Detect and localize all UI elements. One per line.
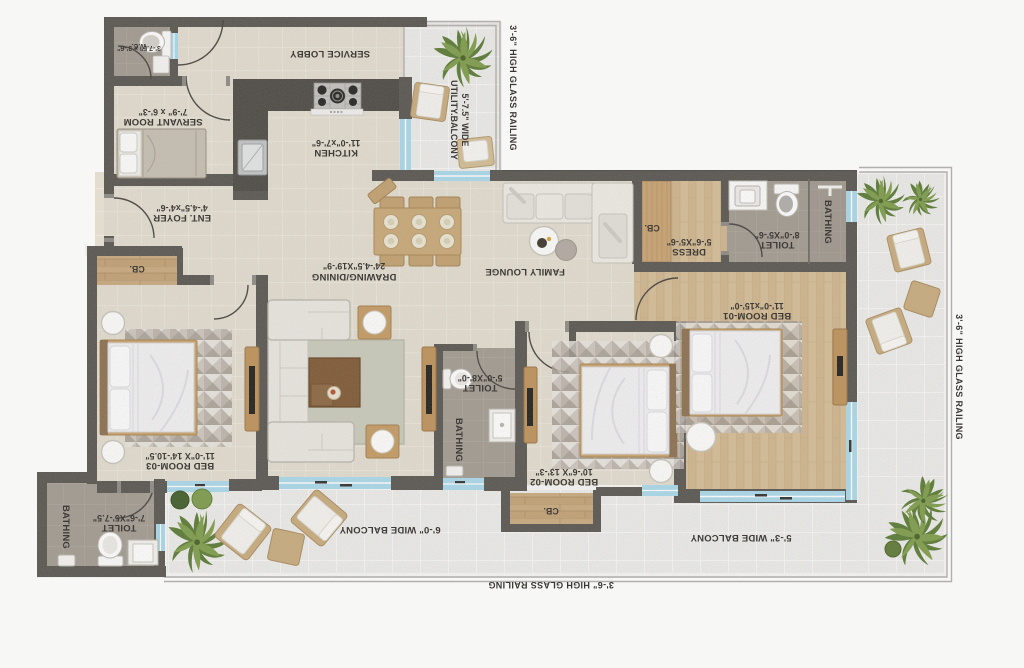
svg-text:5'-3" WIDE BALCONY: 5'-3" WIDE BALCONY: [690, 532, 792, 543]
svg-text:3'-6" HIGH GLASS RAILING: 3'-6" HIGH GLASS RAILING: [488, 580, 614, 590]
svg-text:SERVICE LOBBY: SERVICE LOBBY: [290, 48, 370, 59]
svg-text:DRAWING/DINING: DRAWING/DINING: [312, 271, 397, 282]
svg-text:CB.: CB.: [644, 223, 659, 233]
svg-text:6'-0" WIDE BALCONY: 6'-0" WIDE BALCONY: [339, 524, 441, 535]
svg-text:7'-9" x 6'-3": 7'-9" x 6'-3": [138, 107, 187, 117]
svg-text:4'-4.5"x4'-6": 4'-4.5"x4'-6": [156, 203, 207, 213]
svg-text:3'-6" HIGH GLASS RAILING: 3'-6" HIGH GLASS RAILING: [954, 314, 964, 440]
svg-text:BATHING: BATHING: [60, 505, 71, 549]
svg-text:11'-0"x15'-0": 11'-0"x15'-0": [730, 301, 783, 311]
svg-text:CB.: CB.: [543, 506, 558, 516]
svg-text:5'-0"X8'-0": 5'-0"X8'-0": [458, 373, 503, 383]
svg-text:CB.: CB.: [129, 264, 144, 274]
svg-text:5'-7.5" WIDE: 5'-7.5" WIDE: [460, 94, 470, 147]
svg-text:FAMILY LOUNGE: FAMILY LOUNGE: [485, 266, 565, 277]
svg-text:10'-6"X 13'-3": 10'-6"X 13'-3": [535, 467, 592, 477]
svg-text:11'-0"X 14'-10.5": 11'-0"X 14'-10.5": [145, 451, 215, 461]
svg-text:BATHING: BATHING: [453, 418, 464, 462]
svg-text:UTILITY.BALCONY: UTILITY.BALCONY: [449, 80, 459, 160]
svg-text:8'-0"X5'-6": 8'-0"X5'-6": [755, 230, 800, 240]
svg-text:BATHING: BATHING: [822, 200, 833, 244]
svg-text:7'-6"X5'-7.5": 7'-6"X5'-7.5": [93, 513, 145, 523]
svg-text:3'-6" HIGH GLASS RAILING: 3'-6" HIGH GLASS RAILING: [508, 25, 518, 151]
svg-text:3'-7.5" x 3'-6": 3'-7.5" x 3'-6": [117, 44, 161, 51]
svg-text:5'-6"X5'-6": 5'-6"X5'-6": [667, 237, 712, 247]
svg-text:24'-4.5"X19'-9": 24'-4.5"X19'-9": [323, 261, 385, 271]
svg-text:11'-0"x7'-6": 11'-0"x7'-6": [312, 138, 360, 148]
